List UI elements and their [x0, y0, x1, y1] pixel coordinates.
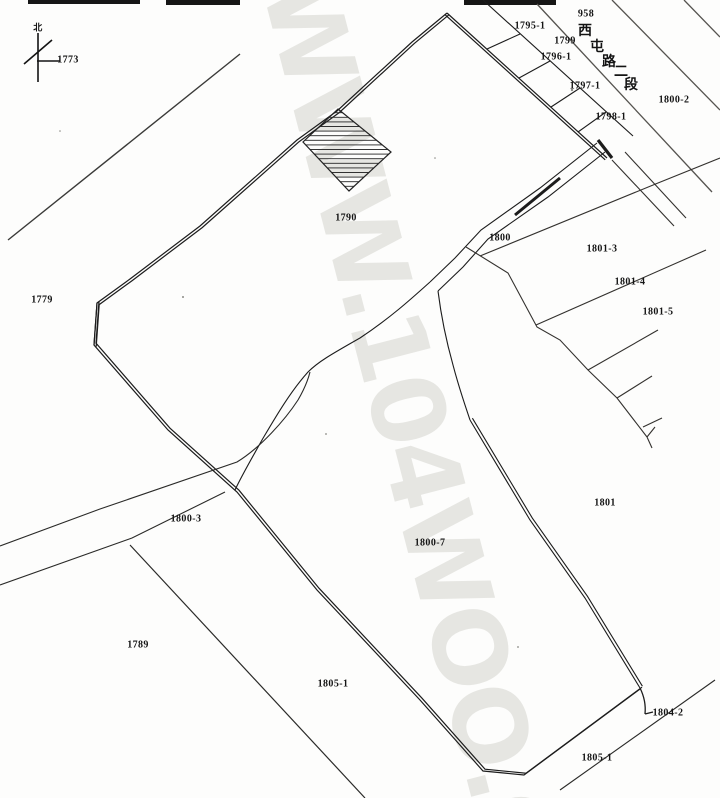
boundary-1773-1779 [8, 54, 240, 240]
road-strip-parcels [483, 0, 633, 136]
parcel-1800-strip [430, 140, 612, 291]
boundary-1789-1805-1 [130, 545, 365, 798]
cadastral-map-page: WWW.104WOO.COM [0, 0, 720, 798]
parcel-1800-3-strip [0, 372, 310, 585]
watermark-text: WWW.104WOO.COM [239, 0, 625, 798]
map-canvas: WWW.104WOO.COM [0, 0, 720, 798]
road-xitun-lines [537, 0, 720, 192]
north-arrow-icon [24, 33, 60, 82]
corner-1804-2 [640, 688, 653, 714]
parcels-1801-series [466, 152, 720, 448]
boundary-1805-1b [560, 680, 715, 790]
